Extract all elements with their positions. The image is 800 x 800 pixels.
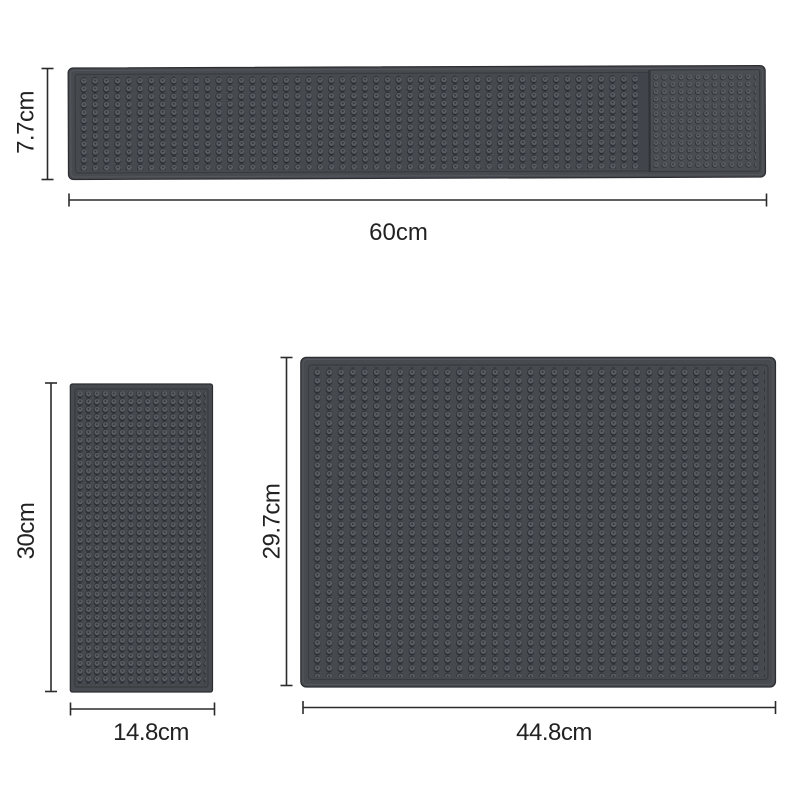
svg-text:29.7cm: 29.7cm [259, 484, 286, 560]
svg-text:7.7cm: 7.7cm [13, 91, 40, 154]
svg-text:30cm: 30cm [13, 503, 40, 560]
svg-text:44.8cm: 44.8cm [516, 719, 592, 746]
svg-text:60cm: 60cm [369, 219, 428, 246]
svg-text:14.8cm: 14.8cm [113, 719, 189, 746]
